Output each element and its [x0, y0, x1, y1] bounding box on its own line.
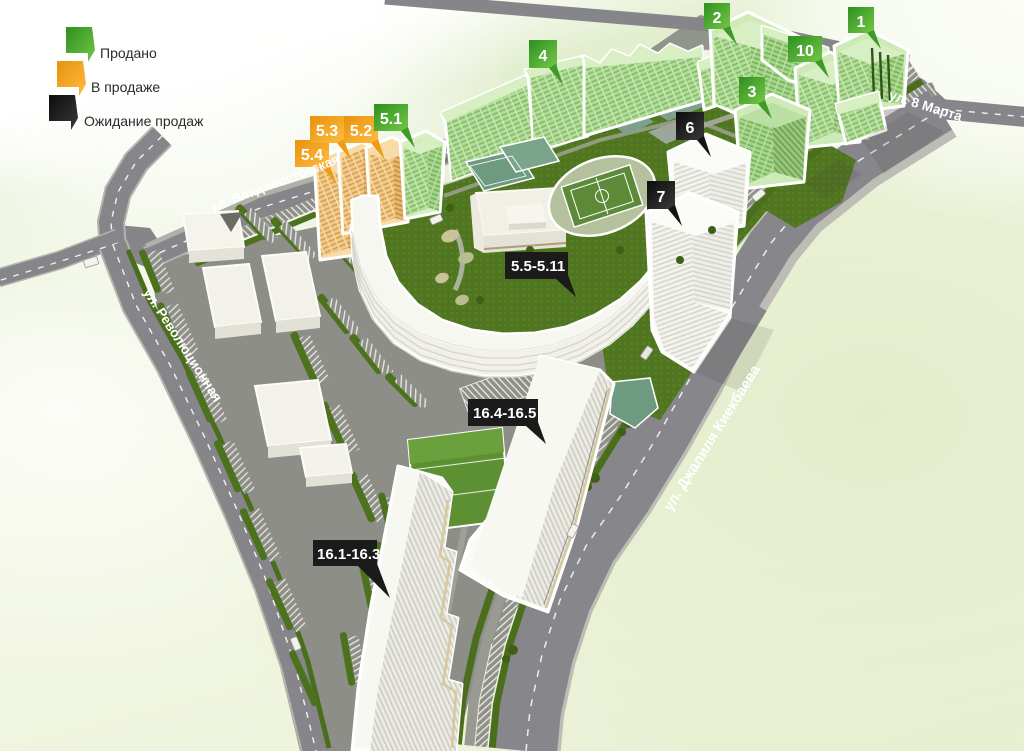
svg-text:16.4-16.5: 16.4-16.5 — [473, 405, 536, 422]
svg-text:5.3: 5.3 — [316, 123, 338, 140]
svg-text:7: 7 — [657, 189, 666, 206]
svg-text:5.2: 5.2 — [350, 123, 372, 140]
svg-text:Ожидание продаж: Ожидание продаж — [84, 113, 204, 129]
svg-text:В продаже: В продаже — [91, 79, 160, 95]
svg-text:10: 10 — [796, 43, 814, 60]
svg-text:5.1: 5.1 — [380, 111, 402, 128]
svg-text:3: 3 — [748, 84, 757, 101]
svg-text:6: 6 — [686, 120, 695, 137]
svg-text:1: 1 — [857, 14, 866, 31]
svg-text:5.5-5.11: 5.5-5.11 — [511, 258, 565, 275]
svg-text:4: 4 — [539, 48, 548, 65]
svg-text:Продано: Продано — [100, 45, 157, 61]
svg-text:16.1-16.3: 16.1-16.3 — [317, 546, 380, 563]
svg-text:2: 2 — [713, 10, 722, 27]
